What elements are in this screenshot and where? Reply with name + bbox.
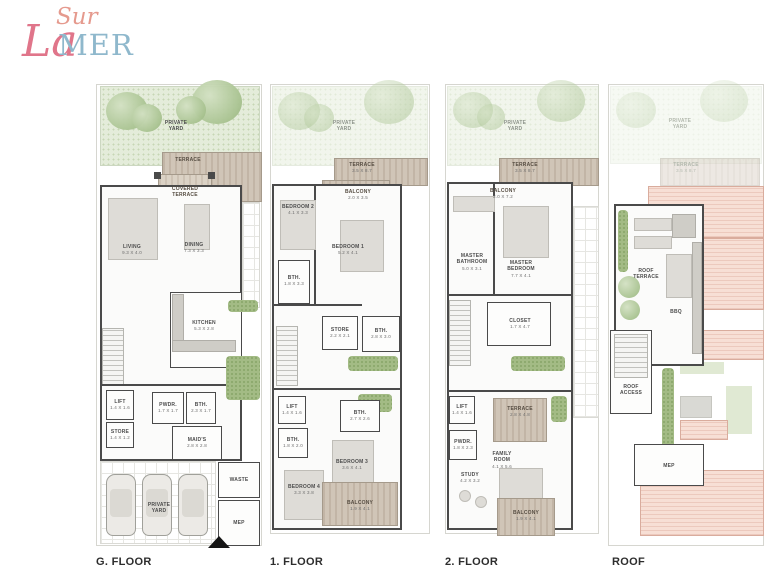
staircase <box>276 326 298 386</box>
hedge-planter <box>618 210 628 272</box>
hedge-planter <box>228 300 258 312</box>
hedge-planter <box>511 356 565 371</box>
store-room <box>322 316 358 350</box>
terrace-area <box>660 158 760 186</box>
bath-room <box>278 428 308 458</box>
plan-2-floor: PRIVATE YARD TERRACE3.5 X 8.7 BALCONY2.0… <box>445 78 600 548</box>
tree <box>364 80 414 124</box>
furniture-kitchen-counter <box>172 340 236 352</box>
hedge-planter <box>226 356 260 400</box>
furniture-chair <box>459 490 471 502</box>
tree <box>477 104 505 130</box>
tree <box>176 96 206 124</box>
waste-room <box>218 462 260 498</box>
wall <box>447 294 573 296</box>
furniture-bed <box>340 220 384 272</box>
tree <box>537 80 585 122</box>
furniture-table <box>666 254 692 298</box>
balcony-area <box>322 482 398 526</box>
closet-room <box>487 302 551 346</box>
powder-room <box>152 392 184 424</box>
maids-room <box>172 426 222 460</box>
plan-1-floor: PRIVATE YARD TERRACE3.5 X 8.7 BALCONY2.0… <box>270 78 432 548</box>
lift-room <box>106 390 134 420</box>
car <box>142 474 172 536</box>
furniture-chair <box>475 496 487 508</box>
store-room <box>106 422 134 448</box>
wall-pier <box>208 172 215 179</box>
bath-room <box>186 392 216 424</box>
furniture-bed <box>503 206 549 258</box>
floor-label-roof: ROOF <box>612 556 645 568</box>
wall <box>447 390 573 392</box>
plan-g-floor: PRIVATE YARD TERRACE COVERED TERRACE LIV… <box>96 78 264 548</box>
floorplan-sheet: { "logo": {"sur": "Sur", "la": "La", "me… <box>0 0 768 575</box>
wall-pier <box>154 172 161 179</box>
wall <box>272 388 402 390</box>
logo-sur: Sur <box>56 4 98 30</box>
hedge-planter <box>348 356 398 371</box>
logo-sur-la-mer: La Sur MER <box>16 4 146 76</box>
side-patio <box>242 202 260 308</box>
tree <box>304 104 334 132</box>
furniture-bbq-counter <box>692 242 702 354</box>
wall <box>272 304 362 306</box>
pergola-patch <box>680 396 712 418</box>
terrace-mid-area <box>493 398 547 442</box>
lift-room <box>449 396 475 424</box>
furniture-bed <box>280 200 316 250</box>
furniture-bed <box>284 470 324 520</box>
bath-room <box>340 400 380 432</box>
green-patch <box>726 386 752 434</box>
tree <box>616 92 656 128</box>
staircase <box>614 334 648 378</box>
logo-mer: MER <box>58 28 134 62</box>
tree <box>620 300 640 320</box>
car <box>106 474 136 536</box>
floor-label-1-floor: 1. FLOOR <box>270 556 323 568</box>
mep-room <box>634 444 704 486</box>
north-arrow-icon <box>208 536 230 548</box>
lift-room <box>278 396 306 424</box>
roof-slope <box>700 238 764 310</box>
furniture-lounger <box>634 218 672 231</box>
side-patio <box>573 206 599 418</box>
furniture-dining-table <box>184 204 210 250</box>
tree <box>700 80 748 122</box>
staircase <box>102 328 124 386</box>
floor-label-2-floor: 2. FLOOR <box>445 556 498 568</box>
furniture-sofa <box>108 198 158 260</box>
balcony-area <box>497 498 555 536</box>
tree <box>618 276 640 298</box>
car <box>178 474 208 536</box>
bath-room <box>362 316 400 352</box>
plan-roof: PRIVATE YARD TERRACE3.5 X 8.7 ROOF TERRA… <box>608 78 766 548</box>
roof-slope <box>680 420 728 440</box>
hedge-planter <box>551 396 567 422</box>
powder-room <box>449 430 477 460</box>
tree <box>132 104 162 132</box>
furniture-bathtub <box>453 196 495 212</box>
furniture-grill <box>672 214 696 238</box>
bath-room <box>278 260 310 304</box>
staircase <box>449 300 471 366</box>
furniture-lounger <box>634 236 672 249</box>
wall <box>100 384 242 386</box>
floor-label-g-floor: G. FLOOR <box>96 556 152 568</box>
